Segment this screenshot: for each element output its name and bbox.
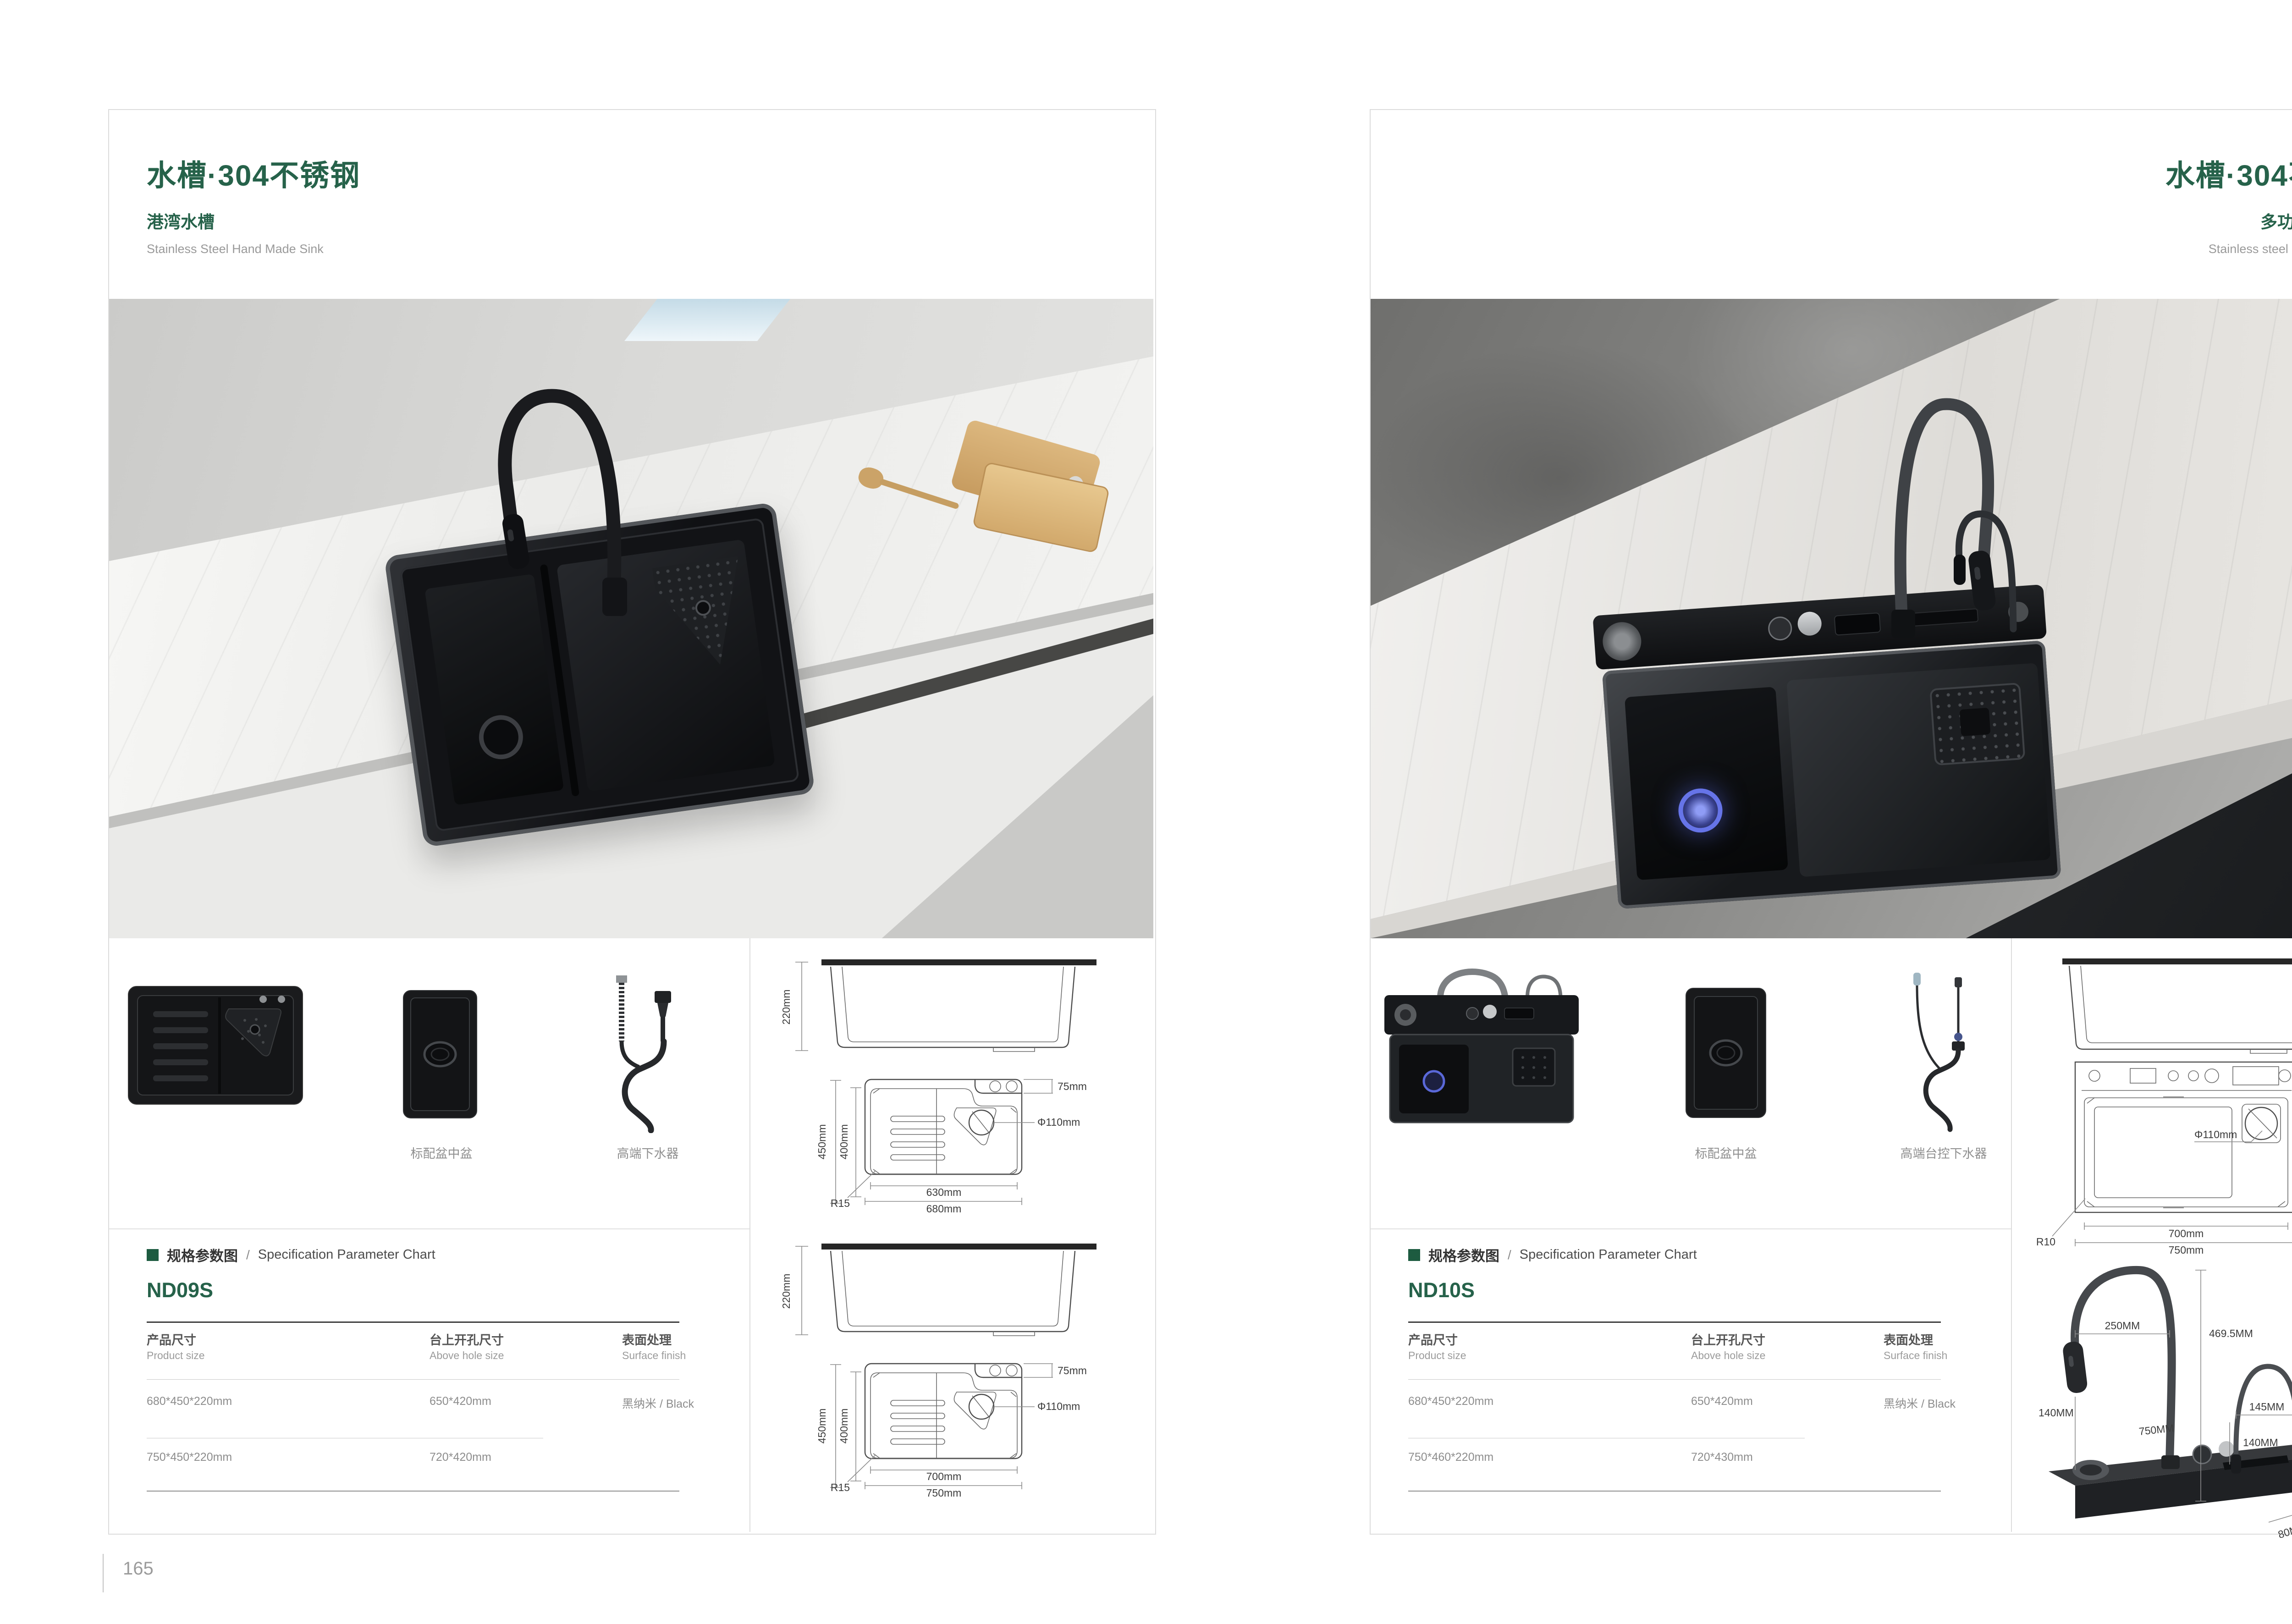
page-number-left: 165: [123, 1558, 154, 1579]
product-photo: [109, 299, 1153, 938]
lower-section: 标配盆中盆 高端台控下水器 规格参数图 / Specification Para…: [1371, 938, 2292, 1532]
page-left: 水槽·304不锈钢 港湾水槽 Stainless Steel Hand Made…: [108, 109, 1156, 1535]
svg-text:250MM: 250MM: [2105, 1320, 2140, 1332]
page-right: 水槽·304不锈钢 多功能一体水槽 Stainless steel hand m…: [1370, 109, 2292, 1535]
drawing-side-view: 220mm: [2035, 956, 2292, 1057]
rule: [147, 1321, 679, 1323]
series-name-cn: 港湾水槽: [147, 208, 215, 233]
catalog-spread: 水槽·304不锈钢 港湾水槽 Stainless Steel Hand Made…: [0, 0, 2292, 1624]
rule: [1408, 1491, 1941, 1492]
blue-drain-icon: [1677, 787, 1724, 834]
rule: [1408, 1379, 1941, 1380]
thumbnail-sink-with-faucet: [1376, 966, 1588, 1130]
model-number: ND09S: [147, 1278, 213, 1302]
green-bullet-icon: [147, 1249, 159, 1261]
svg-text:400mm: 400mm: [838, 1409, 850, 1444]
svg-text:700mm: 700mm: [926, 1470, 962, 1482]
svg-text:Φ110mm: Φ110mm: [1037, 1400, 1080, 1412]
svg-text:75mm: 75mm: [1058, 1365, 1087, 1376]
faucet: [467, 368, 659, 624]
drawing-top-view: Φ110mm 80mm 355mm 460mm R10 700mm 750mm: [2026, 1061, 2292, 1259]
thumbnail-sink-topview: [126, 984, 305, 1107]
thumbnail-basin-in-basin: [1684, 986, 1768, 1119]
section-divider: [109, 1228, 749, 1229]
rule: [147, 1379, 679, 1380]
thumbnails-and-spec: 标配盆中盆 高端台控下水器 规格参数图 / Specification Para…: [1371, 938, 2011, 1532]
drawing-top-view-2: 450mm 400mm 75mm Φ110mm: [778, 1350, 1131, 1511]
thumbnail-drain-kit: [594, 973, 697, 1133]
model-number: ND10S: [1408, 1278, 1475, 1302]
product-photo: [1371, 299, 2292, 938]
section-divider: [1371, 1228, 2011, 1229]
sprayer-holder: [1602, 621, 1643, 662]
svg-text:400mm: 400mm: [838, 1124, 850, 1160]
rule: [147, 1438, 543, 1438]
page-title: 水槽·304不锈钢: [2165, 152, 2292, 194]
svg-text:Φ110mm: Φ110mm: [2194, 1129, 2237, 1140]
sub-basin: [1625, 687, 1788, 880]
svg-text:145MM: 145MM: [2249, 1401, 2285, 1413]
svg-text:750mm: 750mm: [926, 1487, 962, 1499]
svg-text:R10: R10: [2036, 1236, 2055, 1248]
svg-text:700mm: 700mm: [2169, 1228, 2204, 1239]
spec-heading: 规格参数图 / Specification Parameter Chart: [147, 1244, 435, 1265]
page-number-rule-left: [103, 1554, 104, 1592]
drawing-top-view-1: 450mm 400mm 75mm Φ110mm: [778, 1066, 1131, 1227]
caption-basin-in-basin: 标配盆中盆: [1650, 1144, 1802, 1162]
faucets: [1806, 381, 2044, 638]
thumbnail-drain-kit: [1890, 968, 1986, 1133]
rule: [1408, 1438, 1805, 1438]
svg-text:450mm: 450mm: [816, 1124, 828, 1160]
svg-text:469.5MM: 469.5MM: [2209, 1327, 2253, 1339]
svg-text:140MM: 140MM: [2243, 1437, 2278, 1448]
technical-drawings: 220mm Φ11: [2011, 938, 2292, 1532]
spec-heading: 规格参数图 / Specification Parameter Chart: [1408, 1244, 1697, 1265]
rule: [147, 1491, 679, 1492]
series-name-cn: 多功能一体水槽: [2260, 208, 2292, 233]
page-title: 水槽·304不锈钢: [147, 152, 360, 194]
sink-bowl: [1602, 640, 2061, 909]
svg-text:630mm: 630mm: [926, 1186, 962, 1198]
caption-drain-kit: 高端台控下水器: [1854, 1144, 2033, 1162]
svg-text:220mm: 220mm: [780, 1274, 792, 1309]
svg-text:220mm: 220mm: [780, 990, 792, 1025]
svg-text:75mm: 75mm: [1058, 1080, 1087, 1092]
svg-text:750mm: 750mm: [2169, 1244, 2204, 1256]
technical-drawings: 220mm 450mm 400mm 75mm: [749, 938, 1153, 1532]
svg-text:680mm: 680mm: [926, 1203, 962, 1215]
caption-drain-kit: 高端下水器: [572, 1144, 723, 1162]
svg-text:450mm: 450mm: [816, 1409, 828, 1444]
drawing-faucet: 250MM 469.5MM 140MM 750MM 145MM 140MM 22…: [2021, 1263, 2292, 1538]
main-basin: [1786, 663, 2051, 877]
lower-section: 标配盆中盆 高端下水器 规格参数图 / Specification Parame…: [109, 938, 1153, 1532]
green-bullet-icon: [1408, 1249, 1420, 1261]
drain-icon: [476, 712, 526, 762]
svg-text:140MM: 140MM: [2039, 1407, 2074, 1419]
knob-black: [1767, 616, 1793, 641]
svg-text:80MM: 80MM: [2276, 1521, 2292, 1538]
thumbnails-and-spec: 标配盆中盆 高端下水器 规格参数图 / Specification Parame…: [109, 938, 749, 1532]
drawing-side-view-2: 220mm: [778, 1241, 1126, 1339]
series-name-en: Stainless steel hand made sink: [2209, 242, 2292, 256]
square-strainer: [1929, 683, 2025, 765]
thumbnail-basin-in-basin: [402, 989, 479, 1120]
series-name-en: Stainless Steel Hand Made Sink: [147, 242, 324, 256]
svg-text:Φ110mm: Φ110mm: [1037, 1116, 1080, 1128]
svg-text:R15: R15: [831, 1481, 850, 1493]
svg-text:R15: R15: [831, 1197, 850, 1209]
rule: [1408, 1321, 1941, 1323]
drawing-side-view-1: 220mm: [778, 957, 1126, 1055]
caption-basin-in-basin: 标配盆中盆: [366, 1144, 517, 1162]
